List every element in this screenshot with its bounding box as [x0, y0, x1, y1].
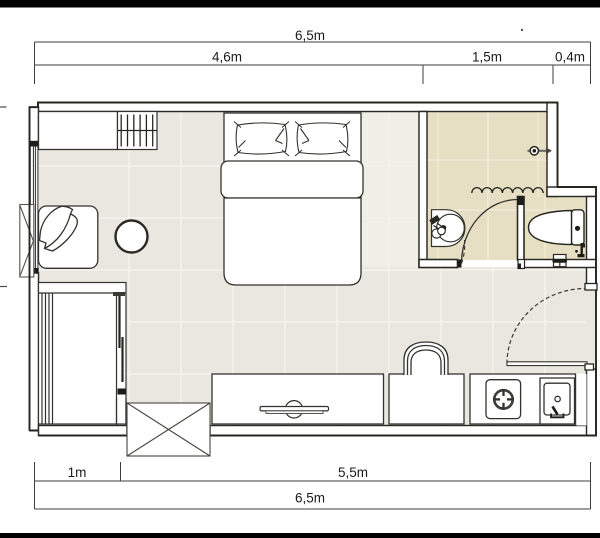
svg-text:4,6m: 4,6m	[212, 50, 242, 65]
svg-text:6,5m: 6,5m	[295, 491, 325, 506]
svg-text:0,4m: 0,4m	[555, 50, 585, 65]
svg-text:1m: 1m	[68, 465, 87, 480]
svg-text:5,5m: 5,5m	[338, 465, 368, 480]
svg-text:6,5m: 6,5m	[295, 28, 325, 43]
svg-text:1,5m: 1,5m	[472, 50, 502, 65]
